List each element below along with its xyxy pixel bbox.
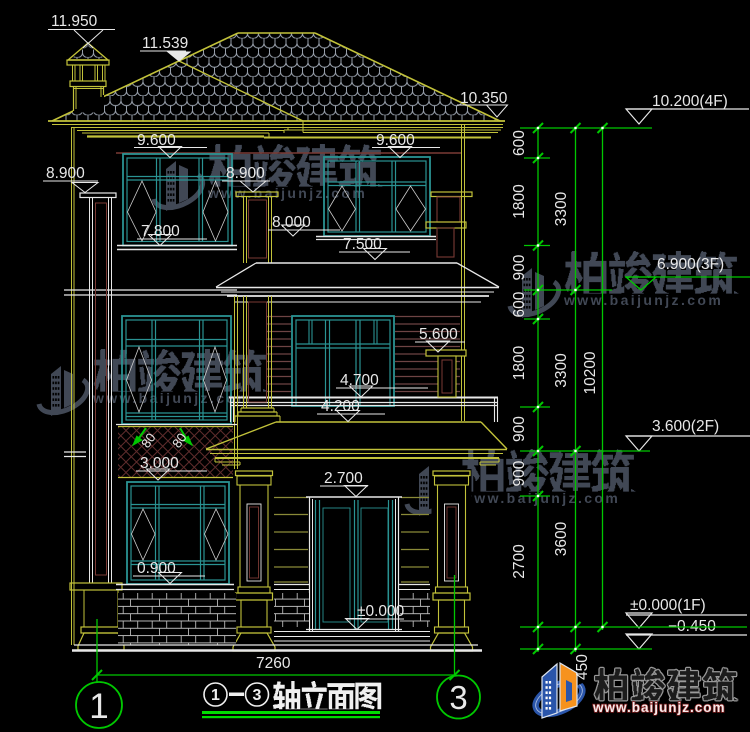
svg-text:1800: 1800 [511,345,528,380]
svg-text:7.500: 7.500 [343,236,382,253]
svg-text:10200: 10200 [582,351,599,394]
svg-text:900: 900 [511,416,528,442]
svg-text:450: 450 [574,654,591,680]
svg-text:11.950: 11.950 [51,13,98,30]
svg-text:4.200: 4.200 [321,398,360,415]
svg-text:www.baijunjz.com: www.baijunjz.com [592,700,726,715]
svg-text:1: 1 [89,687,108,726]
svg-text:1: 1 [211,687,220,704]
svg-text:2700: 2700 [511,544,528,579]
svg-text:900: 900 [511,460,528,486]
svg-text:3: 3 [449,679,467,716]
svg-text:3: 3 [253,687,262,704]
svg-text:10.200(4F): 10.200(4F) [652,93,728,110]
svg-text:7.800: 7.800 [141,223,180,240]
svg-text:600: 600 [511,291,528,317]
svg-text:900: 900 [511,254,528,280]
svg-text:1800: 1800 [511,184,528,219]
svg-text:±0.000: ±0.000 [357,603,405,620]
svg-text:3600: 3600 [553,521,570,556]
svg-text:±0.000(1F): ±0.000(1F) [630,597,706,614]
svg-text:5.600: 5.600 [419,326,458,343]
svg-text:6.900(3F): 6.900(3F) [657,256,724,273]
svg-text:8.900: 8.900 [226,165,265,182]
svg-text:2.700: 2.700 [324,470,363,487]
svg-text:3300: 3300 [553,191,570,226]
svg-text:600: 600 [511,130,528,156]
svg-text:0.900: 0.900 [137,560,176,577]
svg-text:3.600(2F): 3.600(2F) [652,418,719,435]
svg-text:10.350: 10.350 [460,90,508,107]
svg-text:8.900: 8.900 [46,165,85,182]
svg-text:7260: 7260 [256,655,291,672]
svg-text:3300: 3300 [553,353,570,388]
svg-text:11.539: 11.539 [142,35,188,52]
svg-text:8.000: 8.000 [272,214,311,231]
